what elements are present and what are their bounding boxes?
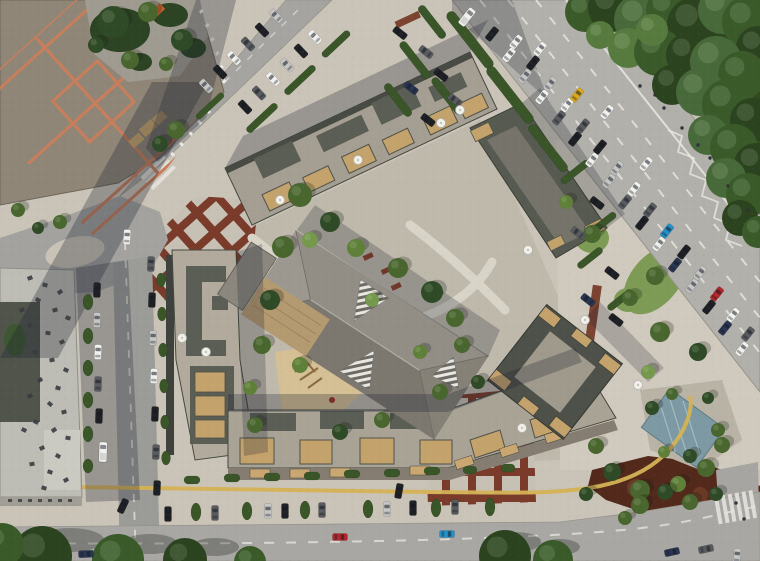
grain-overlay bbox=[0, 0, 760, 561]
aerial-render-viewport bbox=[0, 0, 760, 561]
aerial-render bbox=[0, 0, 760, 561]
